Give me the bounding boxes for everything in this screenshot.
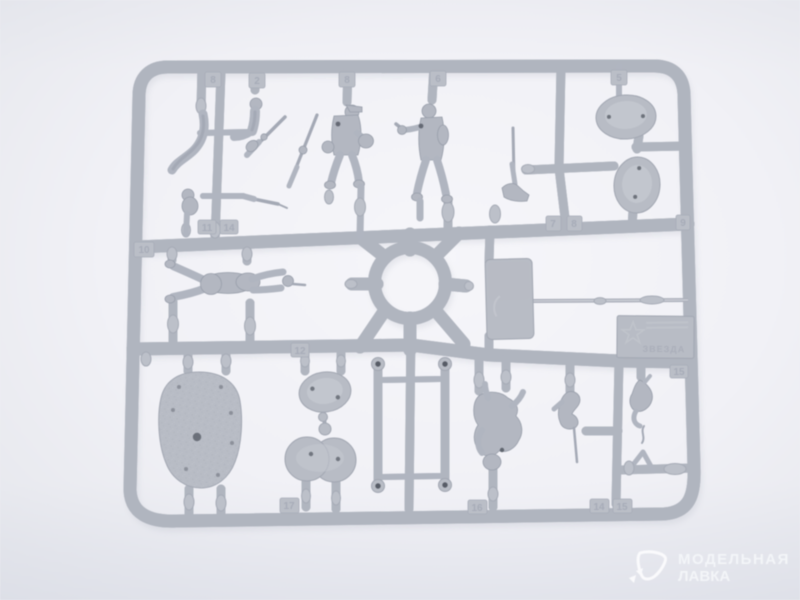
svg-text:14: 14 [223, 223, 235, 234]
svg-text:17: 17 [283, 501, 295, 512]
svg-text:5: 5 [616, 73, 622, 84]
svg-text:ЛАВКА: ЛАВКА [678, 568, 730, 585]
svg-text:11: 11 [202, 223, 213, 234]
svg-text:МОДЕЛЬНАЯ: МОДЕЛЬНАЯ [678, 551, 790, 568]
svg-text:8: 8 [210, 75, 216, 86]
svg-text:16: 16 [471, 503, 483, 514]
svg-text:2: 2 [254, 76, 260, 87]
svg-text:15: 15 [616, 502, 628, 513]
svg-text:14: 14 [593, 502, 605, 513]
svg-text:10: 10 [138, 245, 150, 256]
svg-text:ЗВЕЗДА: ЗВЕЗДА [643, 344, 686, 354]
svg-text:8: 8 [571, 219, 577, 230]
svg-text:12: 12 [294, 346, 306, 357]
svg-text:8: 8 [344, 75, 350, 86]
svg-text:7: 7 [550, 219, 556, 230]
svg-text:9: 9 [680, 218, 686, 229]
svg-text:6: 6 [435, 74, 441, 85]
svg-text:15: 15 [673, 367, 685, 378]
